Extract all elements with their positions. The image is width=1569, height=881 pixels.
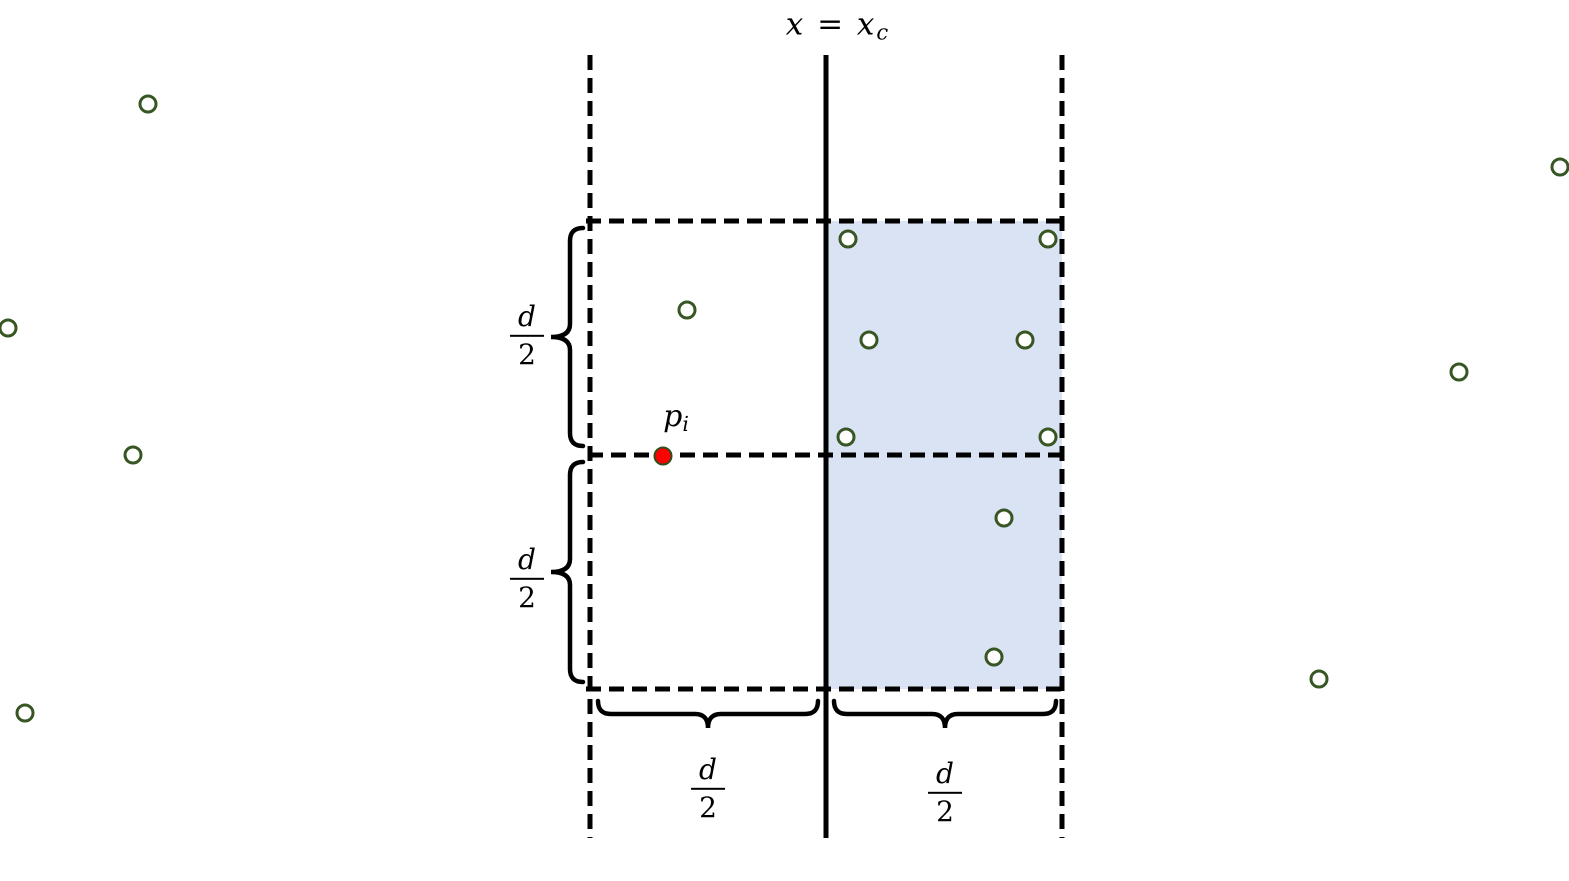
title-subscript: c: [876, 20, 890, 45]
diagram-svg: [0, 0, 1569, 881]
brace-left-top: [551, 228, 583, 446]
title-x-equals-xc: x = xc: [786, 9, 890, 42]
brace-bottom-right: [834, 701, 1056, 728]
half-d-denominator: 2: [518, 337, 536, 371]
half-d-numerator: d: [510, 544, 544, 580]
half-d-denominator: 2: [936, 794, 954, 828]
half-d-denominator: 2: [699, 790, 717, 824]
half-d-numerator: d: [691, 754, 725, 790]
half-d-numerator: d: [510, 301, 544, 337]
point-pi-label: pi: [663, 402, 689, 435]
half-d-label-bottom-left: d 2: [691, 754, 725, 824]
title-main: x = x: [786, 6, 877, 42]
half-d-label-bottom-right: d 2: [928, 758, 962, 828]
brace-left-bottom: [551, 462, 583, 682]
half-d-denominator: 2: [518, 580, 536, 614]
half-d-numerator: d: [928, 758, 962, 794]
pi-base: p: [663, 399, 682, 434]
brace-bottom-left: [598, 701, 818, 728]
pi-subscript: i: [682, 412, 689, 436]
diagram-canvas: x = xc pi d 2 d 2 d 2 d 2: [0, 0, 1569, 881]
half-d-label-left-top: d 2: [510, 301, 544, 371]
half-d-label-left-bottom: d 2: [510, 544, 544, 614]
